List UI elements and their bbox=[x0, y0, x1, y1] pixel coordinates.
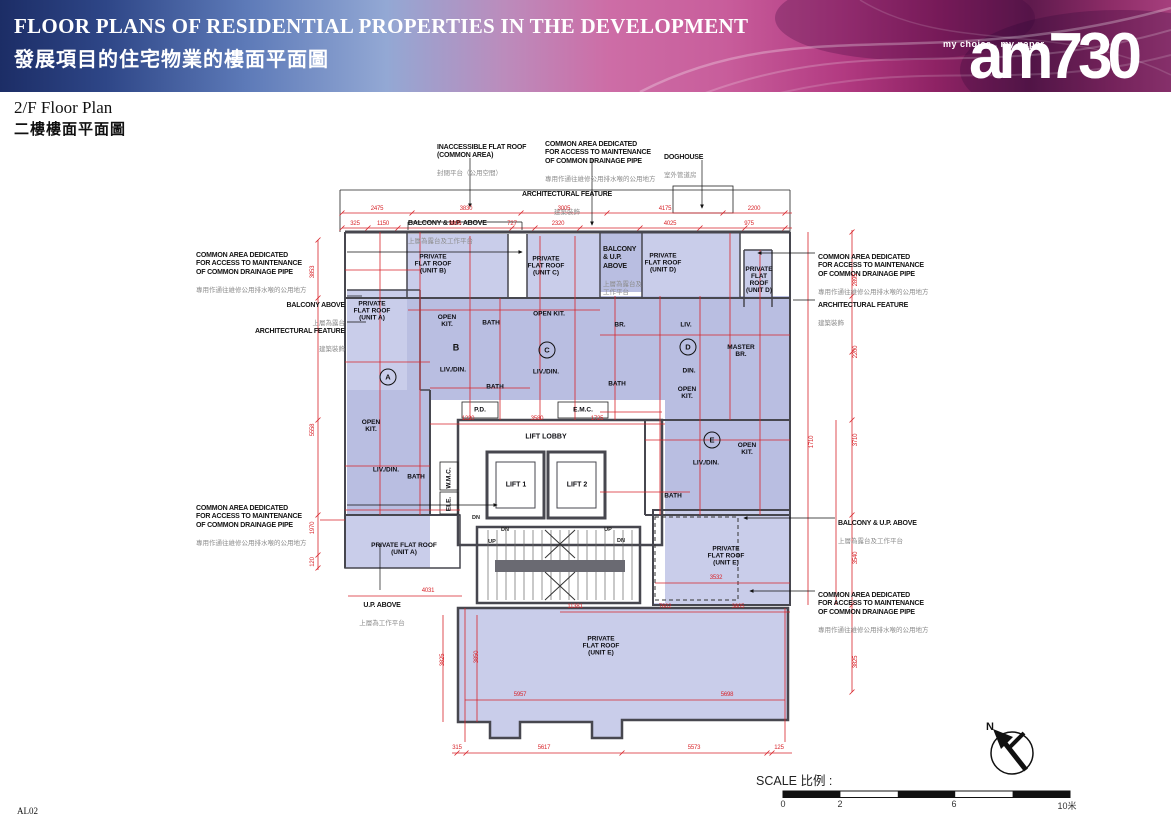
unit-floor-fills bbox=[345, 233, 790, 738]
north-arrow bbox=[991, 729, 1033, 774]
scale-label: SCALE 比例 : bbox=[756, 770, 832, 789]
page: FLOOR PLANS OF RESIDENTIAL PROPERTIES IN… bbox=[0, 0, 1171, 830]
floor-plan-drawing bbox=[0, 0, 1171, 830]
north-letter: N bbox=[986, 721, 994, 733]
page-code: AL02 bbox=[17, 806, 38, 816]
scale-bar bbox=[783, 791, 1070, 798]
